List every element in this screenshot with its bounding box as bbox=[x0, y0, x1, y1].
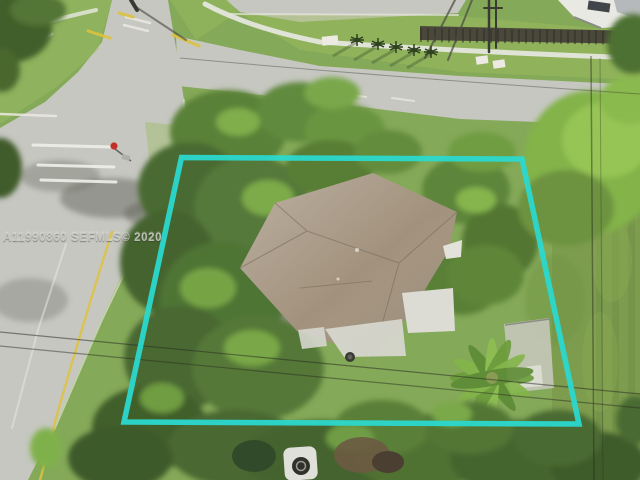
patio bbox=[402, 288, 455, 333]
photo-canvas bbox=[0, 0, 640, 480]
aerial-property-photo: A11990860 SEFMLS© 2020 bbox=[0, 0, 640, 480]
